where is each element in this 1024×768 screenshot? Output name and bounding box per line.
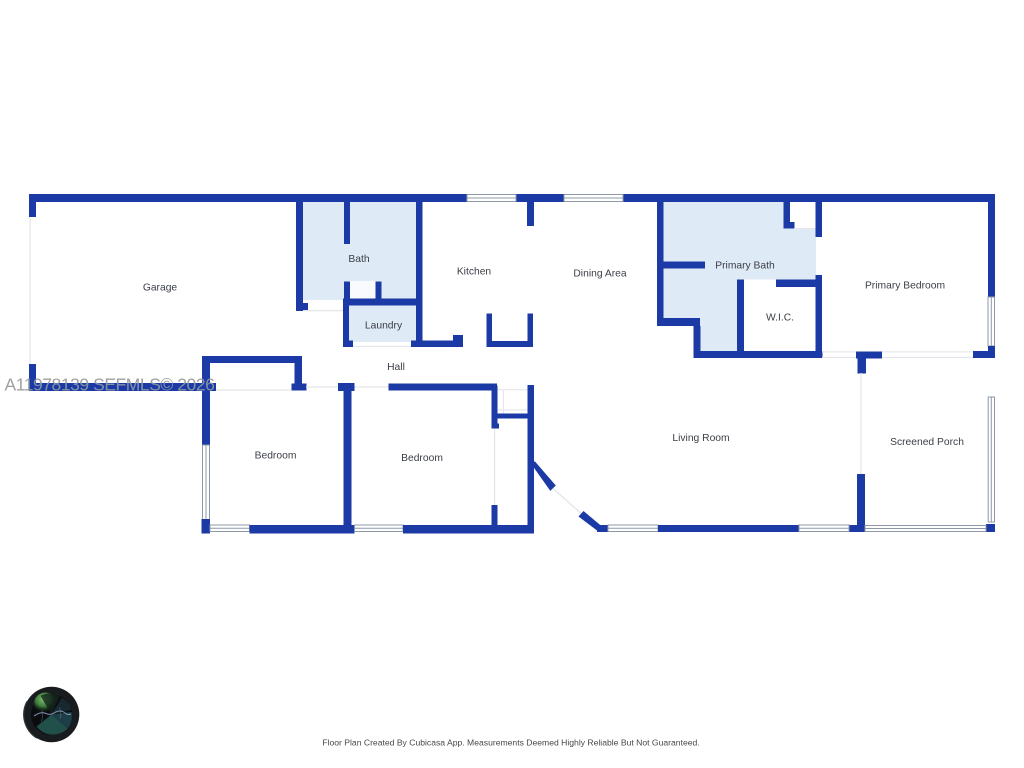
svg-text:Bath: Bath [348, 254, 369, 265]
svg-text:Garage: Garage [143, 283, 178, 294]
svg-text:Bedroom: Bedroom [401, 453, 443, 464]
svg-text:Dining Area: Dining Area [573, 269, 627, 280]
svg-text:Primary Bath: Primary Bath [715, 261, 775, 272]
svg-text:Kitchen: Kitchen [457, 267, 492, 278]
svg-text:A11978139 SEFMLS© 2026: A11978139 SEFMLS© 2026 [5, 375, 215, 395]
svg-text:Living Room: Living Room [672, 433, 729, 444]
svg-text:Floor Plan Created By Cubicasa: Floor Plan Created By Cubicasa App. Meas… [322, 738, 699, 748]
svg-text:Primary Bedroom: Primary Bedroom [865, 281, 945, 292]
svg-text:Bedroom: Bedroom [255, 451, 297, 462]
svg-text:Laundry: Laundry [365, 320, 403, 331]
svg-text:W.I.C.: W.I.C. [766, 313, 794, 324]
svg-text:Hall: Hall [387, 362, 405, 373]
svg-text:Screened Porch: Screened Porch [890, 437, 964, 448]
